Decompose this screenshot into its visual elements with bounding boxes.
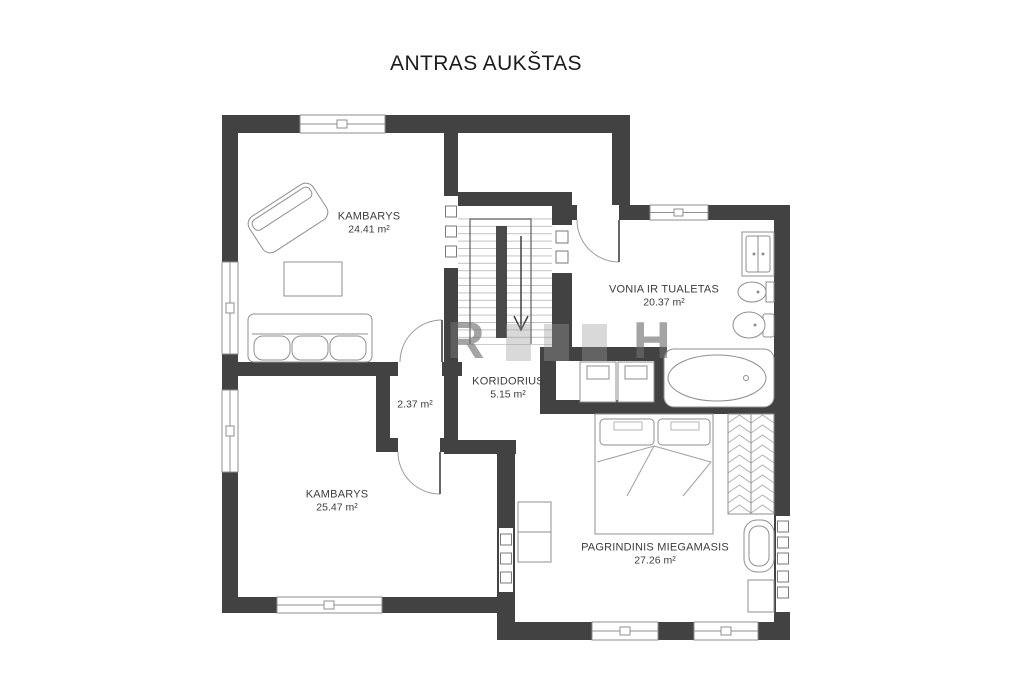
- room-label-koridorius: KORIDORIUS 5.15 m²: [472, 376, 544, 401]
- room-name: KAMBARYS: [306, 489, 369, 501]
- room-name: PAGRINDINIS MIEGAMASIS: [581, 542, 729, 554]
- chaise-sofa: [245, 180, 332, 257]
- watermark-letter: H: [633, 315, 671, 367]
- toilet: [733, 312, 774, 338]
- room-area: 25.47 m²: [306, 502, 369, 514]
- window: [222, 262, 238, 354]
- sink-vanity: [742, 232, 774, 276]
- window: [592, 622, 658, 640]
- watermark-letter: R: [447, 315, 485, 367]
- three-seat-sofa: [248, 314, 372, 362]
- room-area: 20.37 m²: [609, 297, 719, 309]
- wardrobe: [728, 414, 774, 514]
- room-name: KAMBARYS: [338, 211, 401, 223]
- door-arc: [398, 452, 440, 494]
- floor-plan-page: ANTRAS AUKŠTAS: [0, 0, 1024, 683]
- radiator: [776, 516, 790, 612]
- radiator: [552, 225, 572, 273]
- armchair: [744, 520, 774, 572]
- cabinet: [580, 362, 616, 402]
- radiator: [444, 196, 458, 268]
- room-label-kambarys-2: KAMBARYS 25.47 m²: [306, 489, 369, 514]
- room-name: KORIDORIUS: [472, 376, 544, 388]
- door-arc: [577, 220, 619, 262]
- room-label-vonia: VONIA IR TUALETAS 20.37 m²: [609, 284, 719, 309]
- window: [222, 390, 238, 472]
- room-label-kambarys-1: KAMBARYS 24.41 m²: [338, 211, 401, 236]
- bidet: [738, 282, 774, 302]
- stair-stringer: [496, 226, 507, 338]
- room-area: 2.37 m²: [397, 399, 433, 411]
- window: [650, 205, 708, 220]
- window: [300, 115, 385, 133]
- window: [694, 622, 758, 640]
- watermark-ghost-block: [582, 324, 607, 361]
- room-area: 24.41 m²: [338, 224, 401, 236]
- dresser: [518, 502, 551, 562]
- coffee-table: [284, 262, 342, 296]
- bathtub: [664, 349, 774, 407]
- window: [277, 597, 382, 613]
- watermark-ghost-block: [544, 324, 569, 361]
- double-bed: [595, 414, 713, 534]
- room-label-miegamasis: PAGRINDINIS MIEGAMASIS 27.26 m²: [581, 542, 729, 567]
- room-label-closet: 2.37 m²: [397, 398, 433, 411]
- room-area: 27.26 m²: [581, 555, 729, 567]
- watermark-ghost-block: [506, 324, 531, 361]
- room-name: VONIA IR TUALETAS: [609, 284, 719, 296]
- door-arc: [400, 320, 442, 362]
- radiator: [499, 528, 513, 592]
- side-table: [748, 580, 774, 612]
- room-area: 5.15 m²: [472, 389, 544, 401]
